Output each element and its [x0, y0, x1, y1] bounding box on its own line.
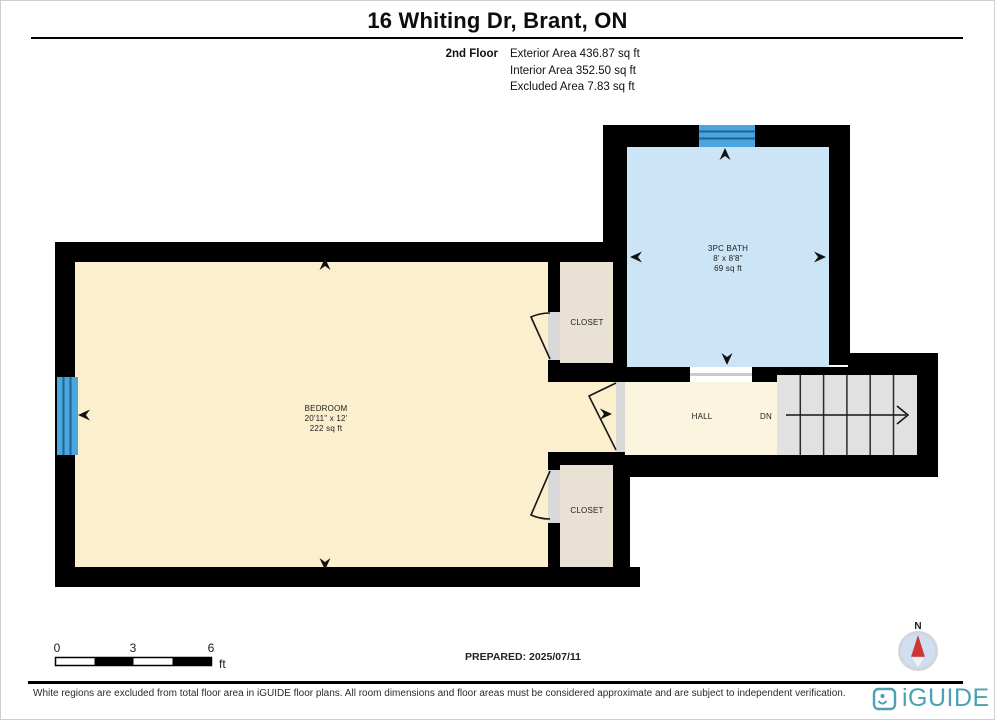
scale-tick-0: 0 [54, 641, 61, 655]
bath-area: 69 sq ft [714, 264, 742, 273]
bedroom-name: BEDROOM [305, 404, 348, 413]
closet-upper-label: CLOSET [570, 318, 603, 327]
disclaimer-text: White regions are excluded from total fl… [33, 688, 846, 699]
scale-unit: ft [219, 657, 226, 671]
compass: N [900, 621, 937, 670]
hall-door-strip [616, 382, 625, 452]
prepared-date: PREPARED: 2025/07/11 [465, 651, 581, 663]
bath-dims: 8' x 8'8" [713, 254, 743, 263]
bath-door-strip [690, 373, 752, 376]
iguide-logo: iGUIDE [872, 684, 990, 713]
scale-tick-6: 6 [208, 641, 215, 655]
footer-divider [28, 681, 963, 684]
closet-lower-floor [560, 465, 613, 567]
scale-bar: 0 3 6 ft [54, 641, 227, 671]
bedroom-dims: 20'11" x 12' [305, 414, 348, 423]
hall-label: HALL [692, 412, 713, 421]
closet-lower-label: CLOSET [570, 506, 603, 515]
bedroom-area: 222 sq ft [310, 424, 343, 433]
scale-tick-3: 3 [130, 641, 137, 655]
compass-north-label: N [914, 621, 921, 632]
floor-plan-drawing: 3PC BATH 8' x 8'8" 69 sq ft CLOSET BEDRO… [0, 0, 995, 720]
bedroom-door-alcove [548, 382, 617, 452]
stairs-dn-label: DN [760, 412, 772, 421]
room-fills [75, 147, 917, 567]
bath-window [699, 125, 755, 147]
closet-upper-floor [560, 262, 613, 363]
closet-lower-door-strip [548, 470, 560, 523]
floorplan-page: 16 Whiting Dr, Brant, ON 2nd Floor Exter… [0, 0, 995, 720]
closet-upper-door-strip [548, 312, 560, 360]
iguide-wordmark: iGUIDE [902, 684, 990, 713]
bedroom-window [57, 377, 78, 455]
iguide-icon [872, 686, 898, 712]
bath-name: 3PC BATH [708, 244, 748, 253]
